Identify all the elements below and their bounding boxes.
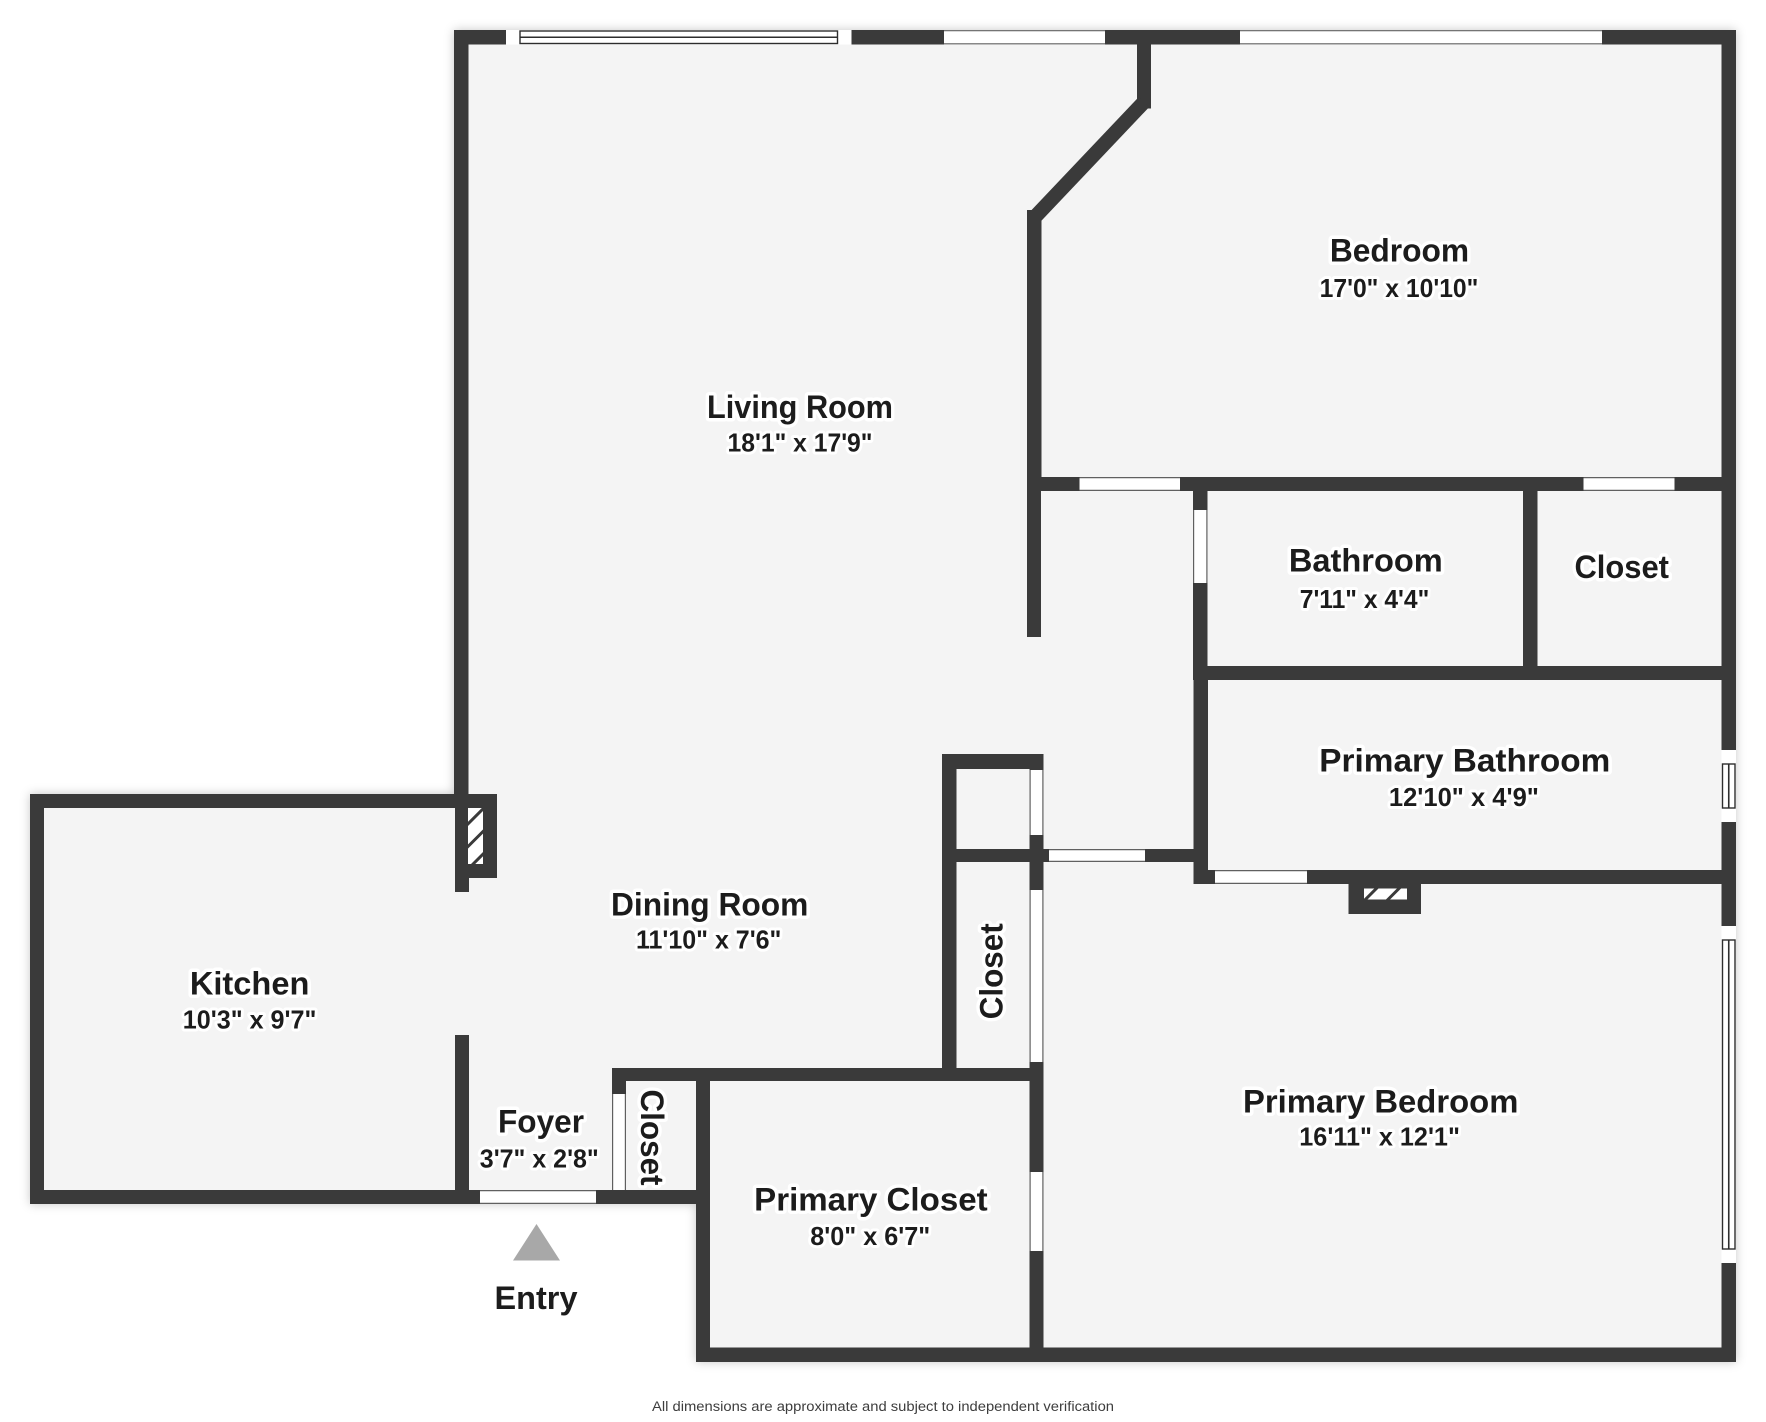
svg-text:Closet: Closet	[634, 1090, 670, 1186]
svg-text:Kitchen: Kitchen	[190, 966, 310, 1002]
svg-text:Dining Room: Dining Room	[611, 886, 808, 922]
svg-text:Primary Closet: Primary Closet	[754, 1182, 988, 1218]
svg-text:7'11" x 4'4": 7'11" x 4'4"	[1300, 584, 1430, 614]
svg-text:10'3" x 9'7": 10'3" x 9'7"	[183, 1005, 317, 1035]
svg-text:16'11" x 12'1": 16'11" x 12'1"	[1299, 1122, 1460, 1152]
svg-text:Bedroom: Bedroom	[1330, 233, 1469, 269]
svg-text:11'10" x 7'6": 11'10" x 7'6"	[636, 924, 781, 954]
svg-text:Primary Bathroom: Primary Bathroom	[1319, 743, 1610, 779]
svg-text:Foyer: Foyer	[498, 1104, 584, 1140]
svg-text:Primary Bedroom: Primary Bedroom	[1243, 1084, 1518, 1120]
svg-text:12'10" x 4'9": 12'10" x 4'9"	[1389, 782, 1539, 812]
svg-text:3'7" x 2'8": 3'7" x 2'8"	[480, 1144, 599, 1174]
svg-text:18'1" x 17'9": 18'1" x 17'9"	[728, 428, 873, 458]
svg-text:Entry: Entry	[495, 1280, 578, 1316]
svg-text:Closet: Closet	[1574, 549, 1669, 585]
svg-text:All dimensions are approximate: All dimensions are approximate and subje…	[652, 1399, 1114, 1414]
svg-text:Closet: Closet	[974, 923, 1010, 1019]
svg-text:17'0" x 10'10": 17'0" x 10'10"	[1320, 273, 1479, 303]
svg-text:Bathroom: Bathroom	[1289, 543, 1443, 579]
svg-text:8'0" x 6'7": 8'0" x 6'7"	[810, 1221, 930, 1251]
svg-text:Living Room: Living Room	[707, 389, 893, 425]
